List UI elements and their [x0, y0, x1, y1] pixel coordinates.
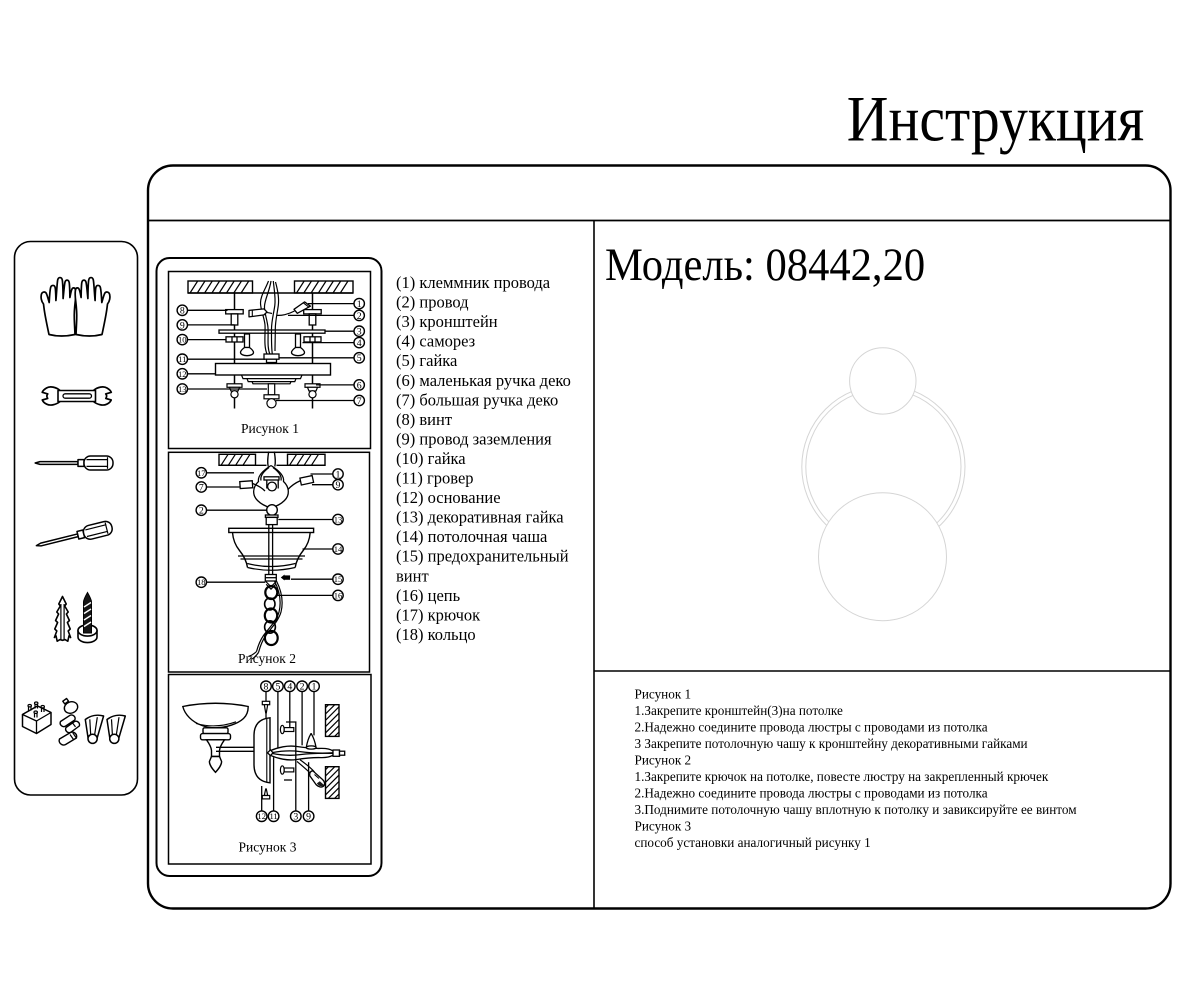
svg-text:2: 2 — [300, 682, 305, 693]
svg-text:4: 4 — [287, 682, 292, 693]
svg-text:(1) клеммник провода: (1) клеммник провода — [396, 273, 551, 292]
svg-text:(10) гайка: (10) гайка — [396, 449, 466, 468]
svg-text:1.Закрепите крючок на потолке,: 1.Закрепите крючок на потолке, повесте л… — [635, 769, 1049, 784]
svg-text:(14) потолочная чаша: (14) потолочная чаша — [396, 527, 548, 546]
svg-text:(2) провод: (2) провод — [396, 293, 469, 312]
svg-text:(5) гайка: (5) гайка — [396, 351, 458, 370]
svg-text:9: 9 — [306, 812, 311, 823]
svg-text:(3) кронштейн: (3) кронштейн — [396, 312, 498, 331]
svg-text:18: 18 — [197, 577, 206, 587]
svg-text:13: 13 — [334, 515, 343, 525]
svg-text:16: 16 — [334, 590, 343, 600]
svg-text:5: 5 — [275, 682, 280, 693]
svg-text:Рисунок 3: Рисунок 3 — [239, 840, 297, 855]
svg-text:7: 7 — [199, 482, 204, 493]
svg-text:2: 2 — [199, 506, 204, 517]
svg-text:13: 13 — [178, 384, 187, 394]
svg-text:2.Надежно соедините провода лю: 2.Надежно соедините провода люстры с про… — [635, 719, 988, 734]
svg-text:Рисунок 1: Рисунок 1 — [241, 421, 299, 436]
svg-text:2: 2 — [357, 311, 362, 322]
svg-text:Рисунок 2: Рисунок 2 — [635, 752, 692, 767]
svg-text:3.Поднимите потолочную чашу вп: 3.Поднимите потолочную чашу вплотную к п… — [635, 802, 1078, 817]
svg-text:12: 12 — [178, 369, 187, 379]
svg-text:12: 12 — [257, 811, 266, 821]
svg-text:11: 11 — [269, 811, 277, 821]
svg-text:(9) провод заземления: (9) провод заземления — [396, 429, 552, 448]
svg-text:10: 10 — [178, 335, 187, 345]
svg-text:(15) предохранительный: (15) предохранительный — [396, 547, 569, 566]
svg-text:Инструкция: Инструкция — [847, 83, 1144, 155]
svg-text:8: 8 — [264, 682, 269, 693]
svg-text:4: 4 — [357, 338, 362, 349]
svg-text:винт: винт — [396, 566, 429, 585]
svg-text:(17) крючок: (17) крючок — [396, 605, 481, 624]
svg-text:Рисунок 3: Рисунок 3 — [635, 818, 692, 833]
svg-text:1: 1 — [312, 682, 317, 693]
svg-text:5: 5 — [357, 353, 362, 364]
svg-text:6: 6 — [357, 380, 362, 391]
svg-text:8: 8 — [180, 306, 185, 317]
svg-text:(6) маленькая ручка деко: (6) маленькая ручка деко — [396, 371, 571, 390]
svg-text:3 Закрепите потолочную чашу к: 3 Закрепите потолочную чашу к кронштейну… — [635, 736, 1028, 751]
svg-text:3: 3 — [357, 327, 362, 338]
svg-text:1: 1 — [357, 299, 362, 310]
svg-text:(7) большая ручка деко: (7) большая ручка деко — [396, 390, 558, 409]
svg-text:(11) гровер: (11) гровер — [396, 469, 474, 488]
svg-text:(13) декоративная гайка: (13) декоративная гайка — [396, 508, 564, 527]
svg-text:Модель: 08442,20: Модель: 08442,20 — [605, 238, 925, 290]
svg-text:(8) винт: (8) винт — [396, 410, 452, 429]
svg-text:14: 14 — [334, 544, 343, 554]
svg-text:2.Надежно соедините провода лю: 2.Надежно соедините провода люстры с про… — [635, 785, 988, 800]
svg-text:(16) цепь: (16) цепь — [396, 586, 461, 605]
svg-text:(18) кольцо: (18) кольцо — [396, 625, 476, 644]
svg-text:9: 9 — [336, 480, 341, 491]
svg-text:Рисунок 2: Рисунок 2 — [238, 651, 296, 666]
svg-text:способ установки аналогичный р: способ установки аналогичный рисунку 1 — [635, 835, 871, 850]
svg-text:(4) саморез: (4) саморез — [396, 332, 475, 351]
svg-text:9: 9 — [180, 320, 185, 331]
svg-text:3: 3 — [293, 812, 298, 823]
svg-text:7: 7 — [357, 396, 362, 407]
svg-text:11: 11 — [178, 354, 186, 364]
svg-text:1: 1 — [336, 469, 341, 480]
svg-text:Рисунок 1: Рисунок 1 — [635, 686, 692, 701]
svg-text:17: 17 — [197, 468, 206, 478]
svg-text:(12) основание: (12) основание — [396, 488, 501, 507]
svg-text:15: 15 — [334, 574, 343, 584]
svg-text:1.Закрепите кронштейн(3)на пот: 1.Закрепите кронштейн(3)на потолке — [635, 703, 843, 718]
